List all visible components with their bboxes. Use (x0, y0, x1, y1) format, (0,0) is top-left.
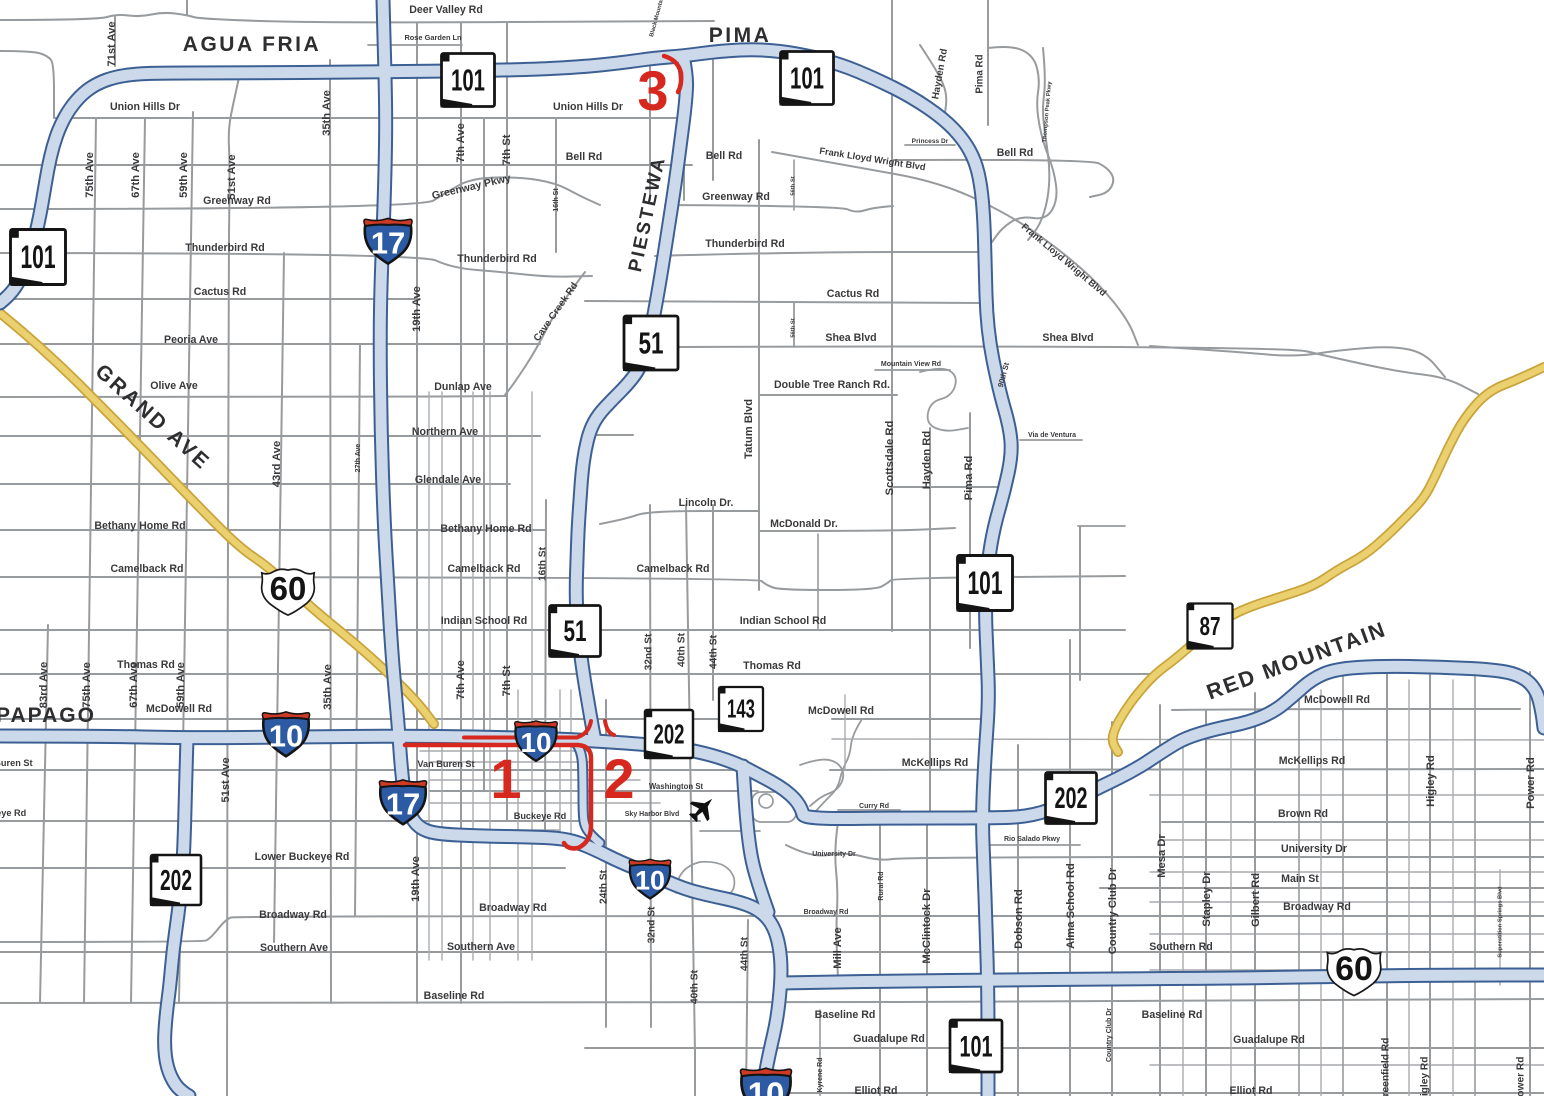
svg-text:10: 10 (269, 718, 303, 753)
svg-text:Dobson Rd: Dobson Rd (1013, 889, 1025, 949)
svg-text:40th St: 40th St (677, 632, 688, 667)
svg-text:101: 101 (790, 61, 824, 96)
svg-text:McDonald Dr.: McDonald Dr. (770, 518, 838, 530)
svg-text:PIMA: PIMA (709, 24, 772, 47)
svg-text:87: 87 (1200, 611, 1221, 641)
svg-text:59th Ave: 59th Ave (178, 152, 190, 198)
svg-text:7th Ave: 7th Ave (455, 660, 467, 700)
svg-text:Country Club Dr: Country Club Dr (1106, 1008, 1113, 1062)
svg-text:3: 3 (637, 59, 668, 122)
svg-text:Elliot Rd: Elliot Rd (855, 1085, 898, 1096)
svg-text:10: 10 (748, 1075, 785, 1096)
svg-text:67th Ave: 67th Ave (130, 152, 142, 198)
svg-text:Dunlap Ave: Dunlap Ave (434, 381, 492, 393)
svg-text:Cactus Rd: Cactus Rd (194, 286, 246, 298)
svg-text:Bell Rd: Bell Rd (997, 147, 1034, 159)
svg-text:Thunderbird Rd: Thunderbird Rd (705, 238, 784, 250)
svg-text:Broadway Rd: Broadway Rd (259, 909, 327, 921)
svg-text:Baseline Rd: Baseline Rd (424, 990, 485, 1002)
svg-text:16th St: 16th St (538, 546, 549, 581)
svg-text:Bethany Home Rd: Bethany Home Rd (440, 523, 531, 535)
svg-text:Power Rd: Power Rd (1525, 757, 1537, 809)
svg-text:Alma School Rd: Alma School Rd (1065, 863, 1077, 949)
svg-text:Baseline Rd: Baseline Rd (815, 1009, 876, 1021)
svg-text:Washington St: Washington St (649, 782, 704, 791)
svg-text:51: 51 (639, 326, 664, 361)
svg-text:Greenway Rd: Greenway Rd (702, 191, 770, 203)
svg-text:Thunderbird Rd: Thunderbird Rd (185, 242, 264, 254)
svg-text:17: 17 (386, 786, 420, 821)
svg-text:Shea Blvd: Shea Blvd (1042, 332, 1093, 344)
svg-text:202: 202 (160, 865, 192, 897)
svg-text:56th St: 56th St (791, 176, 797, 195)
svg-text:Sky Harbor Blvd: Sky Harbor Blvd (625, 811, 679, 818)
svg-text:59th Ave: 59th Ave (175, 662, 187, 708)
svg-text:Stapley Dr: Stapley Dr (1201, 871, 1213, 927)
svg-text:Van Buren St: Van Buren St (0, 758, 33, 768)
svg-text:101: 101 (21, 239, 56, 275)
svg-text:Southern Ave: Southern Ave (447, 941, 515, 953)
svg-text:Brown Rd: Brown Rd (1278, 808, 1328, 820)
svg-text:Country Club Dr: Country Club Dr (1107, 867, 1119, 954)
svg-text:Hayden Rd: Hayden Rd (921, 431, 933, 490)
svg-text:Union Hills Dr: Union Hills Dr (553, 101, 623, 113)
svg-text:Glendale Ave: Glendale Ave (415, 474, 481, 486)
svg-text:McKellips Rd: McKellips Rd (902, 757, 969, 769)
svg-text:Curry Rd: Curry Rd (859, 803, 889, 810)
svg-text:Camelback Rd: Camelback Rd (110, 563, 183, 575)
svg-text:43rd Ave: 43rd Ave (271, 441, 283, 487)
svg-text:Rose Garden Ln: Rose Garden Ln (404, 33, 462, 42)
svg-text:75th Ave: 75th Ave (81, 662, 93, 708)
svg-text:Thunderbird Rd: Thunderbird Rd (457, 253, 536, 265)
svg-text:143: 143 (727, 694, 755, 724)
svg-text:Broadway Rd: Broadway Rd (479, 902, 547, 914)
svg-text:1: 1 (490, 747, 521, 810)
svg-text:Camelback Rd: Camelback Rd (447, 563, 520, 575)
svg-text:19th Ave: 19th Ave (411, 286, 423, 332)
svg-text:Buckeye Rd: Buckeye Rd (514, 811, 567, 821)
svg-text:Southern Ave: Southern Ave (260, 942, 328, 954)
svg-text:19th Ave: 19th Ave (410, 856, 422, 902)
svg-text:Mesa Dr: Mesa Dr (1156, 834, 1168, 878)
svg-text:202: 202 (1055, 782, 1088, 815)
svg-text:Scottsdale Rd: Scottsdale Rd (884, 421, 896, 496)
svg-text:Bell Rd: Bell Rd (566, 151, 603, 163)
svg-text:Guadalupe Rd: Guadalupe Rd (1233, 1034, 1305, 1046)
svg-text:Broadway Rd: Broadway Rd (1283, 901, 1351, 913)
svg-text:Deer Valley Rd: Deer Valley Rd (409, 4, 483, 16)
svg-text:Baseline Rd: Baseline Rd (1142, 1009, 1203, 1021)
svg-text:7th St: 7th St (501, 665, 513, 696)
svg-text:McDowell Rd: McDowell Rd (1304, 694, 1370, 706)
svg-text:101: 101 (968, 565, 1003, 601)
svg-text:51st Ave: 51st Ave (220, 757, 232, 802)
svg-text:83rd Ave: 83rd Ave (38, 662, 50, 708)
svg-text:Mill Ave: Mill Ave (832, 927, 844, 968)
svg-text:AGUA FRIA: AGUA FRIA (183, 33, 321, 56)
svg-text:101: 101 (451, 63, 485, 98)
svg-text:24th St: 24th St (599, 869, 610, 904)
svg-text:56th St: 56th St (791, 318, 797, 337)
svg-text:16th St: 16th St (553, 188, 560, 212)
svg-text:Guadalupe Rd: Guadalupe Rd (853, 1033, 925, 1045)
svg-text:Olive Ave: Olive Ave (150, 380, 198, 392)
svg-text:Via de Ventura: Via de Ventura (1028, 432, 1076, 439)
svg-text:Thomas Rd: Thomas Rd (743, 660, 801, 672)
svg-text:51: 51 (564, 615, 587, 648)
svg-text:Thomas Rd: Thomas Rd (117, 659, 175, 671)
svg-text:Indian School Rd: Indian School Rd (740, 615, 827, 627)
svg-text:75th Ave: 75th Ave (84, 152, 96, 198)
svg-text:Superstition Springs Blvd: Superstition Springs Blvd (1498, 886, 1504, 958)
svg-text:University Dr: University Dr (1281, 843, 1347, 855)
svg-text:Double Tree Ranch Rd.: Double Tree Ranch Rd. (774, 379, 890, 391)
svg-text:10: 10 (520, 727, 551, 758)
svg-text:Cactus Rd: Cactus Rd (827, 288, 879, 300)
svg-text:10: 10 (635, 866, 665, 896)
svg-text:Shea Blvd: Shea Blvd (825, 332, 876, 344)
svg-text:101: 101 (960, 1030, 993, 1063)
svg-text:Main St: Main St (1281, 873, 1319, 885)
svg-text:Buckeye Rd: Buckeye Rd (0, 808, 26, 818)
svg-text:Pima Rd: Pima Rd (975, 54, 986, 93)
svg-text:Princess Dr: Princess Dr (912, 138, 949, 145)
svg-text:Tatum Blvd: Tatum Blvd (743, 399, 755, 459)
svg-text:17: 17 (371, 226, 405, 261)
svg-text:202: 202 (654, 719, 685, 750)
svg-text:67th Ave: 67th Ave (128, 662, 140, 708)
svg-text:Lincoln Dr.: Lincoln Dr. (679, 497, 734, 509)
svg-text:Pima Rd: Pima Rd (963, 455, 975, 500)
svg-text:Union Hills Dr: Union Hills Dr (110, 101, 180, 113)
svg-text:40th St: 40th St (690, 969, 701, 1004)
svg-text:7th St: 7th St (501, 134, 513, 165)
svg-text:Higley Rd: Higley Rd (1425, 755, 1437, 807)
svg-text:44th St: 44th St (709, 634, 720, 669)
svg-text:Mountain View Rd: Mountain View Rd (881, 361, 941, 368)
svg-text:7th Ave: 7th Ave (455, 123, 467, 163)
svg-text:35th Ave: 35th Ave (321, 90, 333, 136)
svg-text:McClintock Dr: McClintock Dr (921, 888, 933, 964)
svg-text:Elliot Rd: Elliot Rd (1230, 1085, 1273, 1096)
svg-text:2: 2 (603, 747, 634, 810)
svg-text:Kyrene Rd: Kyrene Rd (817, 1057, 824, 1092)
svg-text:Northern Ave: Northern Ave (412, 426, 478, 438)
svg-text:Greenfield Rd: Greenfield Rd (1381, 1038, 1392, 1096)
svg-text:Camelback Rd: Camelback Rd (636, 563, 709, 575)
svg-text:Bethany Home Rd: Bethany Home Rd (94, 520, 185, 532)
svg-text:Peoria Ave: Peoria Ave (164, 334, 218, 346)
svg-text:University Dr: University Dr (812, 851, 856, 858)
svg-text:Rio Salado Pkwy: Rio Salado Pkwy (1004, 836, 1060, 843)
svg-text:32nd St: 32nd St (647, 906, 658, 943)
svg-text:Power Rd: Power Rd (1516, 1057, 1527, 1096)
svg-text:PAPAGO: PAPAGO (0, 704, 96, 727)
svg-text:71st Ave: 71st Ave (106, 21, 118, 66)
svg-text:51st Ave: 51st Ave (226, 154, 238, 199)
svg-text:Indian School Rd: Indian School Rd (441, 615, 528, 627)
svg-text:McDowell Rd: McDowell Rd (808, 705, 874, 717)
svg-text:32nd St: 32nd St (644, 633, 655, 670)
svg-text:Lower Buckeye Rd: Lower Buckeye Rd (255, 851, 350, 863)
svg-text:Van Buren St: Van Buren St (417, 759, 474, 769)
svg-text:Broadway Rd: Broadway Rd (804, 909, 849, 916)
svg-text:Higley Rd: Higley Rd (1420, 1057, 1431, 1096)
svg-text:44th St: 44th St (740, 936, 751, 971)
svg-text:35th Ave: 35th Ave (322, 664, 334, 710)
svg-text:Bell Rd: Bell Rd (706, 150, 743, 162)
svg-text:Southern Rd: Southern Rd (1149, 941, 1213, 953)
svg-text:27th Ave: 27th Ave (355, 444, 362, 473)
svg-text:Rural Rd: Rural Rd (878, 871, 885, 900)
svg-text:McKellips Rd: McKellips Rd (1279, 755, 1346, 767)
svg-text:60: 60 (1335, 950, 1373, 988)
svg-text:Gilbert Rd: Gilbert Rd (1250, 873, 1262, 927)
svg-text:60: 60 (270, 570, 307, 607)
